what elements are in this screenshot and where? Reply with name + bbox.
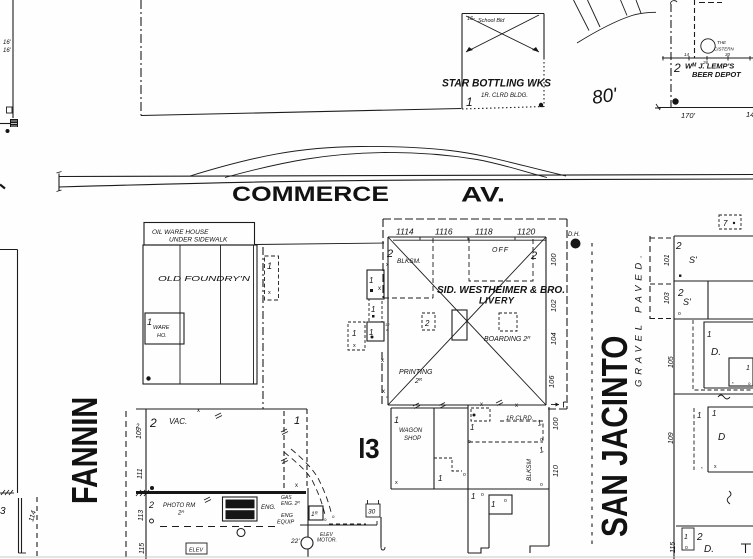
svg-text:111: 111 <box>137 468 144 479</box>
svg-text:S': S' <box>689 255 697 265</box>
svg-text:o: o <box>685 545 688 551</box>
svg-text:o: o <box>468 439 471 445</box>
svg-text:3: 3 <box>0 506 6 517</box>
svg-text:115: 115 <box>139 543 146 554</box>
svg-text:2: 2 <box>135 424 140 430</box>
svg-text:1: 1 <box>707 330 711 339</box>
svg-text:OLD FOUNDRY'N: OLD FOUNDRY'N <box>158 274 251 283</box>
svg-text:HO.: HO. <box>157 333 167 339</box>
svg-text:x: x <box>378 286 381 292</box>
svg-text:113: 113 <box>138 510 145 521</box>
svg-text:o: o <box>463 472 466 478</box>
svg-text:110: 110 <box>551 464 560 477</box>
svg-text:2: 2 <box>673 61 681 75</box>
svg-text:EQUIP: EQUIP <box>277 520 294 526</box>
svg-text:1: 1 <box>369 276 373 285</box>
svg-text:o: o <box>748 381 751 386</box>
svg-text:MOTOR.: MOTOR. <box>317 538 337 544</box>
svg-text:30: 30 <box>368 509 376 516</box>
svg-text:ENG.: ENG. <box>261 505 276 511</box>
svg-text:D.: D. <box>711 347 721 358</box>
svg-text:VAC.: VAC. <box>169 417 187 426</box>
svg-text:SAN JACINTO: SAN JACINTO <box>595 336 635 537</box>
svg-text:7: 7 <box>723 219 728 228</box>
svg-text:1: 1 <box>294 415 300 427</box>
svg-text:ELEV: ELEV <box>189 548 204 554</box>
svg-text:2: 2 <box>148 500 154 510</box>
svg-text:16-: 16- <box>467 16 475 22</box>
svg-text:104: 104 <box>549 332 558 345</box>
svg-text:106: 106 <box>547 375 556 388</box>
svg-text:2: 2 <box>149 416 157 430</box>
svg-text:2: 2 <box>424 319 430 328</box>
svg-text:AV.: AV. <box>461 183 505 207</box>
svg-text:x: x <box>515 403 518 409</box>
svg-text:x: x <box>395 480 398 486</box>
svg-text:22': 22' <box>290 538 300 545</box>
svg-text:BLKSM.: BLKSM. <box>397 258 421 265</box>
svg-text:1R: 1R <box>311 510 319 518</box>
svg-text:o: o <box>540 437 543 443</box>
svg-text:1: 1 <box>267 261 272 271</box>
svg-text:D: D <box>718 432 725 443</box>
svg-text:1: 1 <box>697 411 701 420</box>
svg-text:x: x <box>295 483 298 489</box>
svg-text:x: x <box>353 343 356 349</box>
svg-text:100: 100 <box>549 253 558 266</box>
svg-text:x: x <box>386 262 389 268</box>
svg-text:1: 1 <box>438 474 442 483</box>
svg-text:3: 3 <box>365 433 379 464</box>
svg-text:PRINTING: PRINTING <box>399 369 433 376</box>
svg-text:1: 1 <box>538 445 545 455</box>
svg-text:170': 170' <box>681 111 696 120</box>
svg-text:30: 30 <box>725 52 731 57</box>
svg-text:2: 2 <box>696 532 703 543</box>
svg-text:PHOTO RM: PHOTO RM <box>163 503 195 509</box>
svg-text:102: 102 <box>549 299 558 312</box>
svg-text:1: 1 <box>394 415 399 425</box>
svg-text:School Bld: School Bld <box>478 18 505 24</box>
svg-text:2: 2 <box>386 248 393 260</box>
svg-text:o: o <box>332 514 335 519</box>
svg-text:1R. CLRD BLDG.: 1R. CLRD BLDG. <box>481 93 528 99</box>
svg-text:THE: THE <box>717 40 727 45</box>
svg-text:100: 100 <box>551 417 560 430</box>
svg-text:BOARDING 2R: BOARDING 2R <box>484 335 531 343</box>
svg-text:1: 1 <box>369 328 373 337</box>
svg-text:1: 1 <box>147 317 152 327</box>
svg-text:*: * <box>732 381 734 386</box>
svg-text:D.H.: D.H. <box>568 232 580 238</box>
svg-text:o: o <box>540 482 543 488</box>
svg-text:SHOP: SHOP <box>404 436 421 442</box>
svg-text:o: o <box>481 492 484 498</box>
svg-text:1: 1 <box>371 305 375 314</box>
svg-text:BLKSM: BLKSM <box>526 458 533 481</box>
svg-text:x: x <box>268 290 271 296</box>
svg-text:1: 1 <box>471 492 475 501</box>
svg-text:UNDER SIDEWALK: UNDER SIDEWALK <box>169 237 228 244</box>
svg-text:1116: 1116 <box>435 227 453 237</box>
svg-text:1118: 1118 <box>475 227 493 237</box>
svg-text:1: 1 <box>684 534 688 541</box>
svg-text:14: 14 <box>684 52 690 57</box>
svg-text:1: 1 <box>491 500 495 509</box>
svg-text:1: 1 <box>466 95 473 109</box>
svg-text:x: x <box>381 358 384 364</box>
svg-text:GRAVEL PAVED.: GRAVEL PAVED. <box>634 250 645 387</box>
svg-text:1: 1 <box>536 418 543 428</box>
svg-text:x: x <box>197 408 200 414</box>
svg-text:x: x <box>714 464 717 470</box>
svg-text:D.: D. <box>704 544 714 555</box>
svg-text:LIVERY: LIVERY <box>479 296 515 306</box>
svg-text:101: 101 <box>664 254 671 266</box>
svg-text:COMMERCE: COMMERCE <box>232 182 389 206</box>
svg-text:ENG: ENG <box>281 513 294 519</box>
svg-text:OIL WARE HOUSE: OIL WARE HOUSE <box>152 229 209 236</box>
svg-text:1: 1 <box>712 409 716 418</box>
svg-text:FANNIN: FANNIN <box>64 397 105 504</box>
svg-text:1: 1 <box>746 365 750 372</box>
svg-text:*: * <box>701 466 703 471</box>
svg-text:S': S' <box>683 297 691 307</box>
svg-text:2R: 2R <box>414 377 423 385</box>
svg-text:1120: 1120 <box>517 227 536 237</box>
svg-text:SID. WESTHEIMER & BRO.: SID. WESTHEIMER & BRO. <box>437 285 565 296</box>
svg-text:WAGON: WAGON <box>399 428 423 434</box>
svg-text:1: 1 <box>352 329 356 338</box>
svg-text:80': 80' <box>591 85 620 109</box>
svg-text:1: 1 <box>470 423 474 432</box>
svg-text:16': 16' <box>3 40 12 46</box>
svg-text:16': 16' <box>3 48 12 54</box>
svg-text:o: o <box>324 517 327 522</box>
svg-text:x: x <box>480 402 483 408</box>
svg-text:o: o <box>678 311 681 317</box>
svg-text:2R: 2R <box>177 509 184 517</box>
svg-text:114: 114 <box>28 510 38 523</box>
svg-text:OFF: OFF <box>492 247 509 254</box>
svg-text:STAR BOTTLING WKS: STAR BOTTLING WKS <box>442 78 552 90</box>
svg-text:o: o <box>504 498 507 504</box>
svg-text:CISTERN: CISTERN <box>714 47 735 52</box>
svg-text:BEER DEPOT: BEER DEPOT <box>692 70 742 79</box>
svg-text:WARE: WARE <box>153 325 170 331</box>
svg-text:x: x <box>382 389 385 395</box>
svg-text:2: 2 <box>675 241 682 252</box>
svg-text:2: 2 <box>530 250 537 262</box>
svg-text:14: 14 <box>746 110 753 119</box>
svg-text:ENG. 2R: ENG. 2R <box>281 501 300 507</box>
svg-text:103: 103 <box>664 292 671 304</box>
svg-text:1114: 1114 <box>396 227 414 237</box>
